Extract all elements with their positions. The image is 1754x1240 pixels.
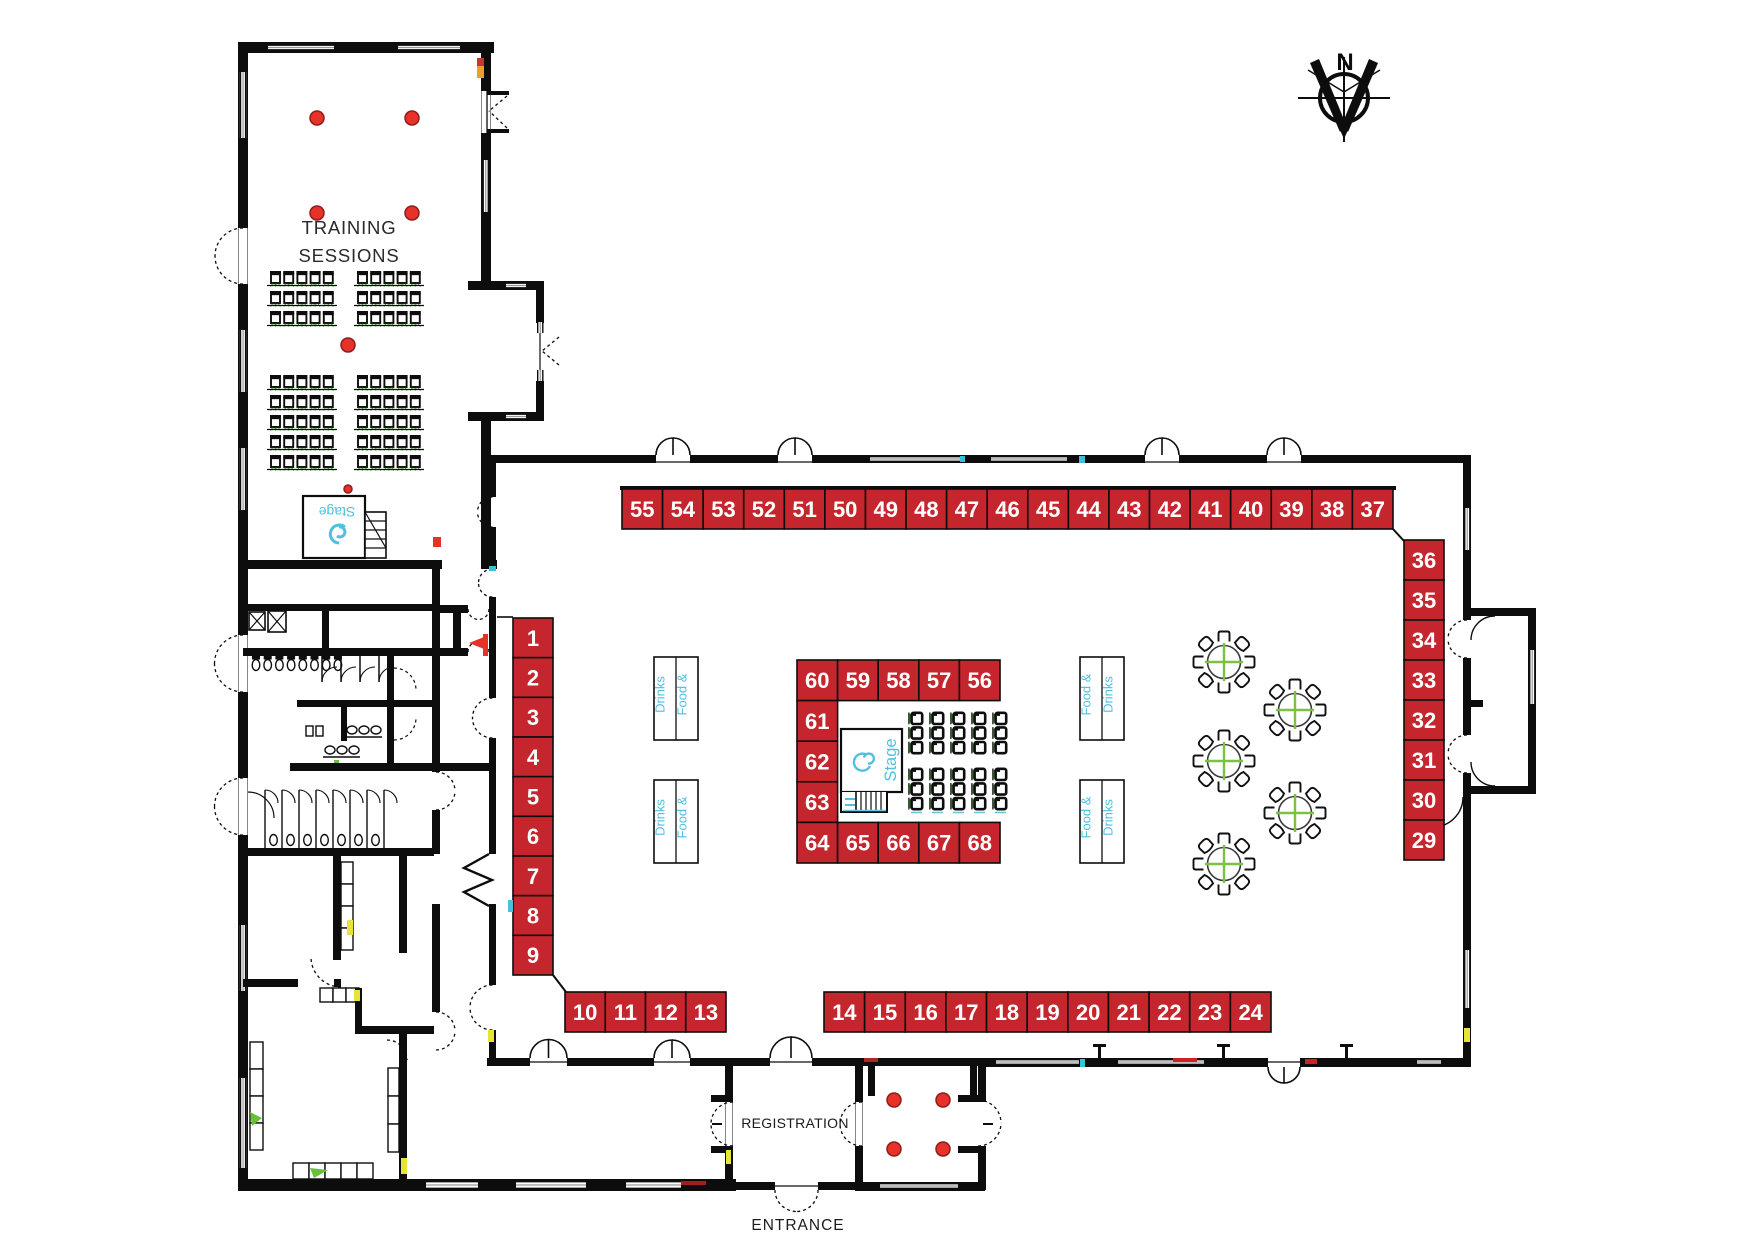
- svg-text:33: 33: [1412, 668, 1436, 693]
- svg-text:Stage: Stage: [882, 738, 900, 781]
- svg-text:Drinks: Drinks: [653, 799, 668, 836]
- svg-text:44: 44: [1076, 497, 1101, 522]
- svg-text:52: 52: [752, 497, 776, 522]
- svg-text:19: 19: [1035, 1000, 1059, 1025]
- svg-text:68: 68: [967, 831, 991, 856]
- svg-text:43: 43: [1117, 497, 1141, 522]
- svg-text:1: 1: [527, 626, 539, 651]
- svg-text:66: 66: [886, 831, 910, 856]
- svg-text:11: 11: [614, 1000, 637, 1025]
- svg-text:18: 18: [995, 1000, 1019, 1025]
- svg-text:32: 32: [1412, 708, 1436, 733]
- svg-text:67: 67: [927, 831, 951, 856]
- svg-text:64: 64: [805, 831, 830, 856]
- svg-text:34: 34: [1412, 628, 1437, 653]
- svg-text:Food &: Food &: [1079, 673, 1094, 715]
- svg-text:ENTRANCE: ENTRANCE: [751, 1217, 844, 1234]
- svg-text:51: 51: [792, 497, 816, 522]
- svg-text:42: 42: [1158, 497, 1182, 522]
- svg-text:22: 22: [1157, 1000, 1181, 1025]
- svg-text:7: 7: [527, 864, 539, 889]
- svg-text:16: 16: [913, 1000, 937, 1025]
- svg-text:Stage: Stage: [318, 504, 355, 520]
- svg-text:38: 38: [1320, 497, 1344, 522]
- svg-text:Drinks: Drinks: [1101, 799, 1116, 836]
- svg-text:62: 62: [805, 749, 829, 774]
- svg-text:37: 37: [1360, 497, 1384, 522]
- svg-text:13: 13: [694, 1000, 718, 1025]
- svg-text:63: 63: [805, 790, 829, 815]
- svg-text:55: 55: [630, 497, 654, 522]
- svg-text:36: 36: [1412, 548, 1436, 573]
- svg-text:39: 39: [1279, 497, 1303, 522]
- svg-text:31: 31: [1412, 748, 1436, 773]
- svg-text:20: 20: [1076, 1000, 1100, 1025]
- svg-text:56: 56: [967, 668, 991, 693]
- svg-text:57: 57: [927, 668, 951, 693]
- svg-text:49: 49: [874, 497, 898, 522]
- svg-text:41: 41: [1198, 497, 1222, 522]
- svg-text:61: 61: [805, 709, 829, 734]
- svg-text:48: 48: [914, 497, 938, 522]
- svg-text:23: 23: [1198, 1000, 1222, 1025]
- svg-text:50: 50: [833, 497, 857, 522]
- svg-text:30: 30: [1412, 788, 1436, 813]
- svg-text:45: 45: [1036, 497, 1060, 522]
- svg-text:58: 58: [886, 668, 910, 693]
- svg-text:Food &: Food &: [675, 796, 690, 838]
- svg-text:9: 9: [527, 943, 539, 968]
- svg-text:40: 40: [1239, 497, 1263, 522]
- svg-text:2: 2: [527, 665, 539, 690]
- svg-text:REGISTRATION: REGISTRATION: [741, 1115, 849, 1131]
- svg-text:53: 53: [711, 497, 735, 522]
- svg-text:15: 15: [873, 1000, 897, 1025]
- svg-text:5: 5: [527, 784, 539, 809]
- svg-text:47: 47: [955, 497, 979, 522]
- svg-text:3: 3: [527, 705, 539, 730]
- svg-text:10: 10: [573, 1000, 597, 1025]
- svg-text:Food &: Food &: [675, 673, 690, 715]
- svg-text:29: 29: [1412, 828, 1436, 853]
- svg-text:Food &: Food &: [1079, 796, 1094, 838]
- svg-text:Drinks: Drinks: [653, 676, 668, 713]
- svg-text:6: 6: [527, 824, 539, 849]
- svg-text:12: 12: [653, 1000, 677, 1025]
- svg-text:59: 59: [846, 668, 870, 693]
- svg-text:60: 60: [805, 668, 829, 693]
- svg-text:SESSIONS: SESSIONS: [299, 245, 400, 266]
- svg-text:14: 14: [832, 1000, 857, 1025]
- svg-text:4: 4: [527, 745, 540, 770]
- svg-text:Drinks: Drinks: [1101, 676, 1116, 713]
- svg-text:17: 17: [954, 1000, 978, 1025]
- svg-text:35: 35: [1412, 588, 1436, 613]
- svg-text:24: 24: [1238, 1000, 1263, 1025]
- svg-text:46: 46: [995, 497, 1019, 522]
- svg-text:54: 54: [671, 497, 696, 522]
- svg-text:65: 65: [846, 831, 870, 856]
- svg-text:21: 21: [1117, 1000, 1141, 1025]
- svg-text:8: 8: [527, 903, 539, 928]
